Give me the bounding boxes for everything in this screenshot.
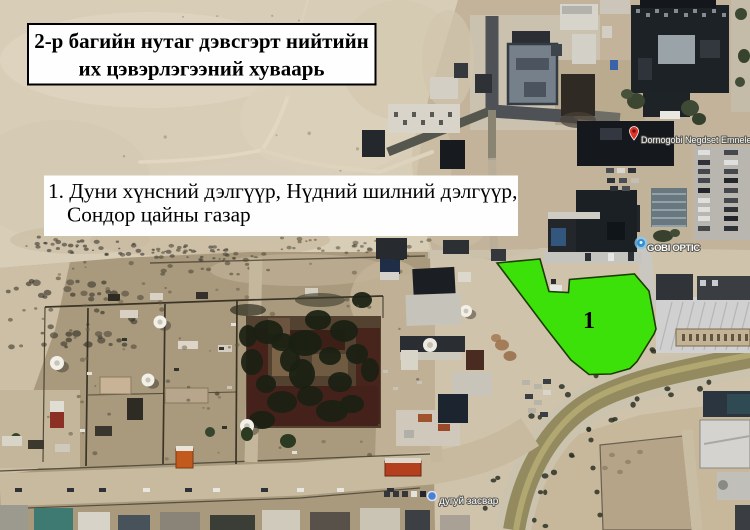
- svg-text:1. Дуни хүнсний дэлгүүр, Нүдни: 1. Дуни хүнсний дэлгүүр, Нүдний шилний д…: [48, 179, 517, 203]
- svg-text:Сондор цайны газар: Сондор цайны газар: [67, 203, 251, 227]
- svg-text:1: 1: [583, 308, 595, 334]
- svg-text:GOBI OPTIC: GOBI OPTIC: [647, 243, 700, 254]
- svg-text:дугуй засвар: дугуй засвар: [439, 496, 499, 507]
- svg-text:Dornogobi Negdset Emnelege: Dornogobi Negdset Emnelege: [641, 135, 750, 145]
- svg-text:их цэвэрлэгээний хуваарь: их цэвэрлэгээний хуваарь: [78, 57, 324, 81]
- svg-text:2-р багийн нутаг дэвсгэрт нийт: 2-р багийн нутаг дэвсгэрт нийтийн: [34, 29, 369, 53]
